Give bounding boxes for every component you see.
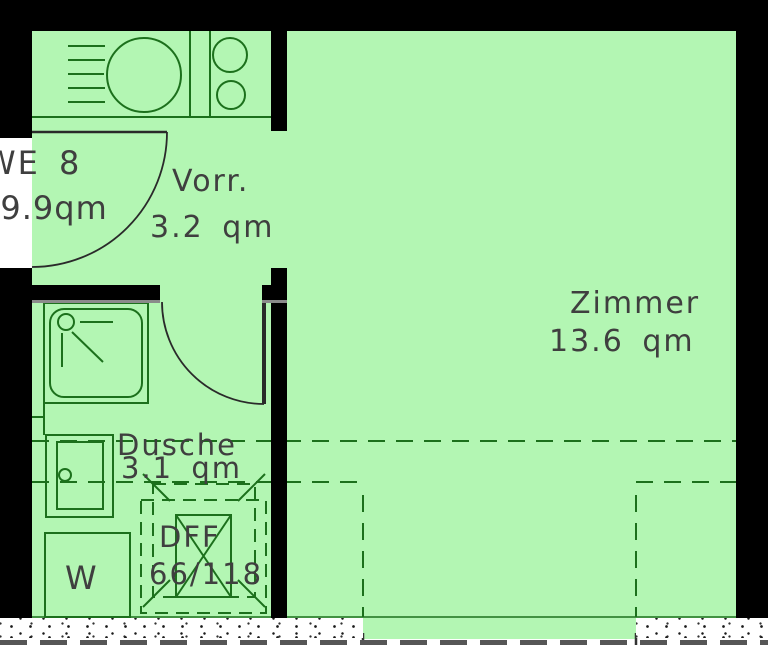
window-opening-dashed-sides (363, 495, 636, 617)
wall-dusche-stub (262, 285, 271, 300)
kitchen-sink-icon (107, 38, 181, 112)
unit-area: 19.9qm (0, 191, 108, 226)
room-label-zimmer: Zimmer (570, 287, 700, 320)
roof-window-size: 66/118 (149, 559, 263, 591)
dusche-door-swing-arc (162, 302, 264, 404)
unit-label: WE 8 (0, 146, 81, 181)
wall-top (0, 0, 768, 31)
room-label-vorraum: Vorr. (172, 165, 249, 198)
shower-drain-icon (58, 314, 74, 330)
dusche-lintel-left (32, 300, 160, 303)
eaves-band-left (0, 618, 363, 638)
room-area-vorraum: 3.2 qm (150, 211, 275, 244)
wall-dusche-top (32, 285, 160, 300)
facade-dashed-line (0, 640, 768, 645)
duct-ledge-lines (30, 403, 44, 435)
basin-drain-icon (59, 469, 71, 481)
stove-burner-small-icon (217, 81, 245, 109)
roof-window-label: DFF (159, 522, 221, 554)
plan-linework (0, 0, 768, 645)
wall-right (736, 31, 768, 618)
washer-label: W (65, 561, 99, 596)
floor-plan: WE 8 19.9qm Vorr. 3.2 qm Zimmer 13.6 qm … (0, 0, 768, 645)
eaves-band-right (636, 618, 768, 638)
room-area-dusche: 3.1 qm (121, 453, 242, 485)
sink-drainer-lines (68, 46, 105, 102)
room-area-zimmer: 13.6 qm (549, 325, 695, 358)
shower-diagonal-line (72, 332, 103, 362)
wall-interior-lower (271, 268, 287, 618)
dusche-lintel-right (262, 300, 287, 303)
wall-interior-upper (271, 31, 287, 131)
basin-inner (57, 442, 103, 509)
wall-left (0, 31, 32, 618)
stove-burner-large-icon (213, 38, 247, 72)
